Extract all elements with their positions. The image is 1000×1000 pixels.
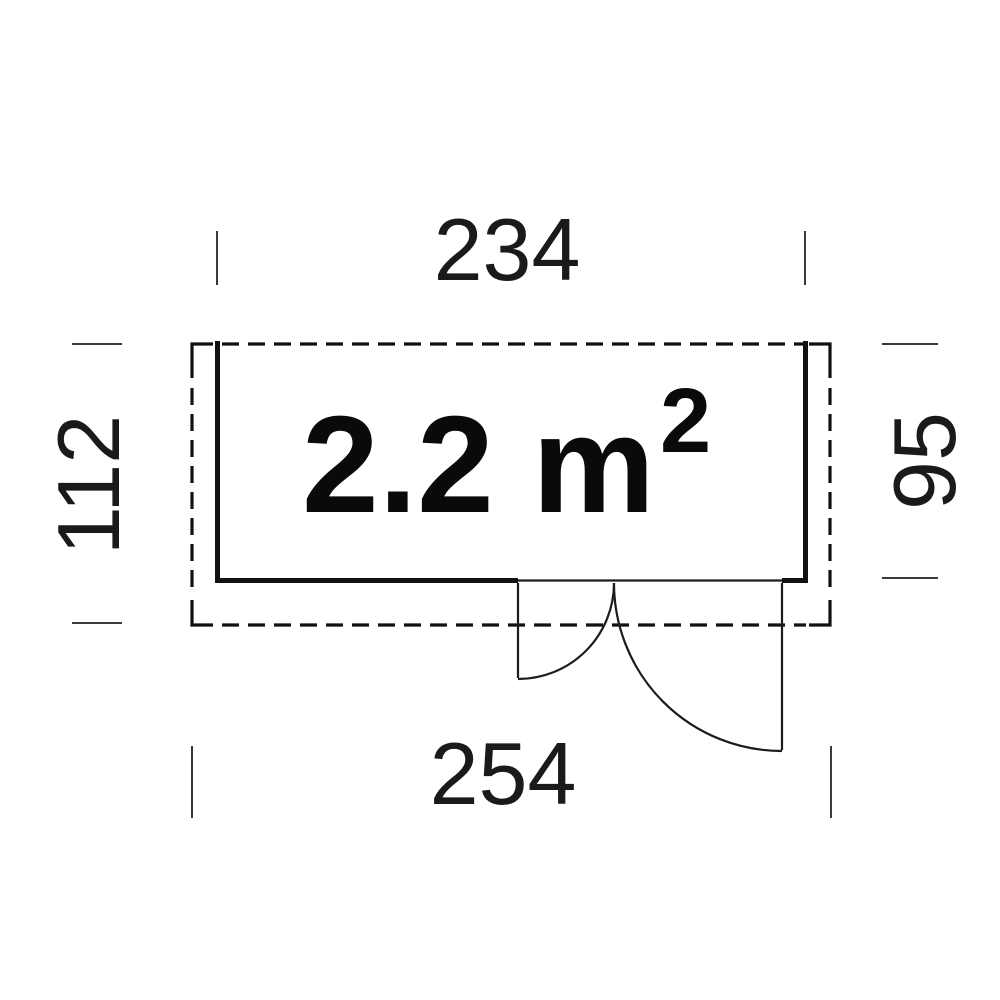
roof-corner-bottom-right bbox=[809, 600, 830, 625]
wall-left bbox=[215, 341, 220, 583]
door-left-swing-arc bbox=[518, 583, 614, 679]
floor-plan-drawing: 234 254 112 95 2.2 m 2 bbox=[0, 0, 1000, 1000]
dim-label-left: 112 bbox=[39, 415, 138, 555]
dim-label-right: 95 bbox=[875, 412, 974, 510]
dim-label-top: 234 bbox=[434, 200, 581, 299]
area-label: 2.2 m 2 bbox=[302, 370, 711, 542]
wall-bottom-left-segment bbox=[215, 578, 518, 583]
floor-plan-page: 234 254 112 95 2.2 m 2 bbox=[0, 0, 1000, 1000]
dim-label-bottom: 254 bbox=[430, 724, 577, 823]
area-value: 2.2 m bbox=[302, 388, 655, 542]
area-exponent: 2 bbox=[660, 370, 711, 472]
roof-corner-top-right bbox=[809, 344, 830, 378]
roof-corner-bottom-left bbox=[192, 600, 213, 625]
door-right-swing-arc bbox=[614, 583, 782, 751]
wall-bottom-right-segment bbox=[782, 578, 808, 583]
wall-right bbox=[803, 341, 808, 583]
roof-corner-top-left bbox=[192, 344, 213, 378]
